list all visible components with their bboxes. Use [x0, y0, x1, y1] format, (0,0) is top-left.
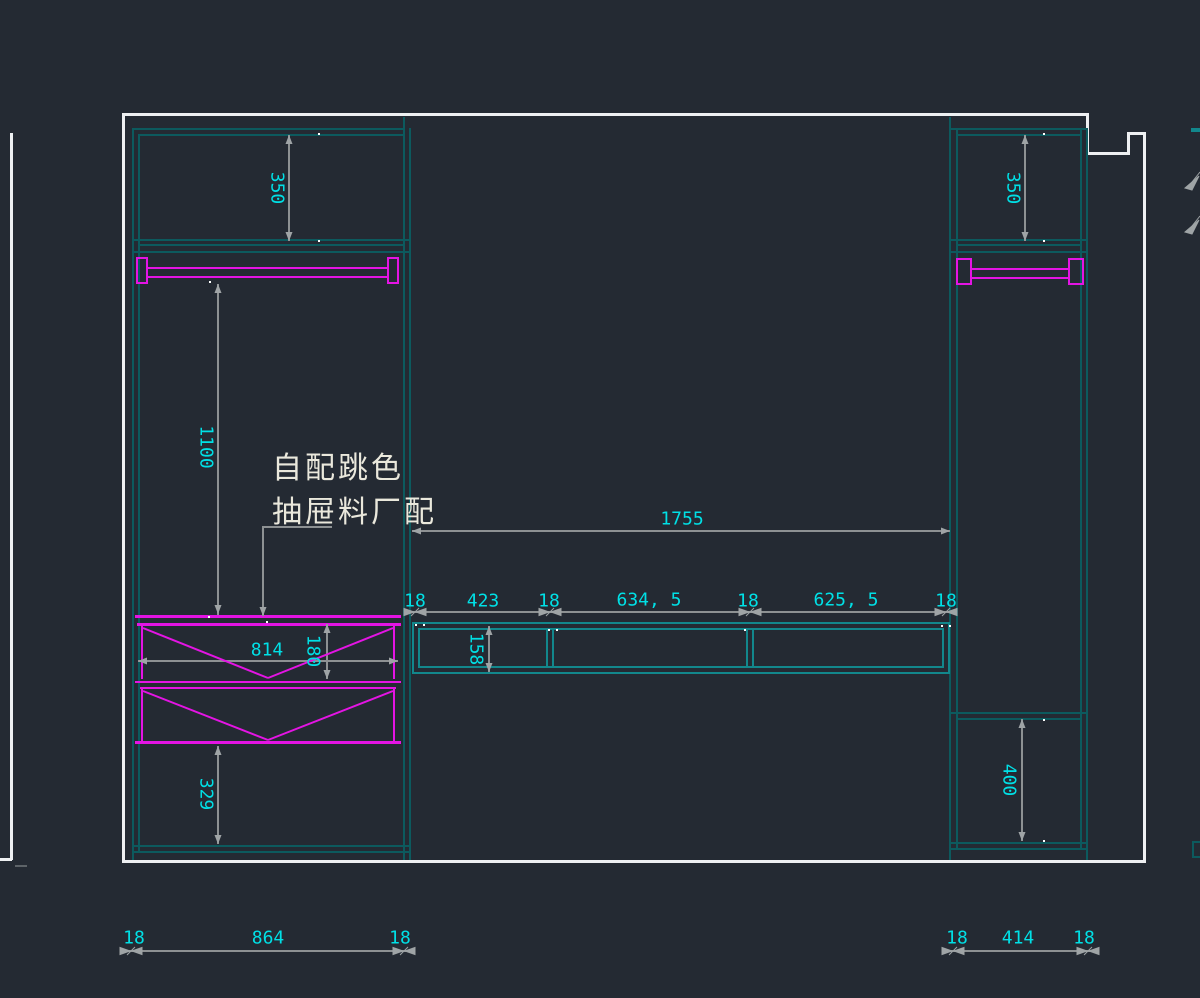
annotation-line-1: 自配跳色: [272, 443, 404, 487]
dim-1100-line: [217, 284, 219, 615]
outline-bottom: [122, 860, 1146, 863]
bench-divider-2b: [752, 628, 754, 668]
clipped-teal-fragment-h1: [1192, 841, 1200, 843]
adjacent-drawing-bottom-edge: [0, 858, 12, 861]
right-cabinet-rod-board: [949, 251, 1088, 253]
left-cabinet-top-inner-line: [138, 134, 405, 136]
dim-br-414-label: 414: [1002, 928, 1035, 949]
left-rod-bar: [146, 267, 389, 278]
clipped-teal-mark-top: [1191, 128, 1200, 132]
bench-right-inner: [942, 628, 944, 668]
left-cabinet-base-top: [132, 845, 409, 847]
dim-seg-18-4-label: 18: [935, 591, 957, 612]
dim-400-line: [1021, 719, 1023, 841]
dim-seg-625-label: 625, 5: [813, 590, 878, 611]
defpoint: [1043, 240, 1045, 242]
dim-bl-18-2-label: 18: [389, 928, 411, 949]
dim-1100-label: 1100: [196, 425, 217, 468]
left-cabinet-rod-board: [132, 251, 409, 253]
drawer-1-left-edge: [141, 626, 143, 679]
right-cabinet-left-outer: [949, 117, 951, 860]
defpoint: [318, 240, 320, 242]
bench-right-outer: [948, 622, 950, 674]
left-cabinet-shelf-bottom: [138, 244, 403, 246]
bench-top-inner: [418, 628, 944, 630]
right-cabinet-base-top: [949, 842, 1088, 844]
dim-814-label: 814: [251, 640, 284, 661]
dim-seg-18-1-label: 18: [404, 591, 426, 612]
dim-180-line: [326, 624, 328, 679]
right-rod-bar: [970, 268, 1070, 279]
drawer-unit-top-outer: [135, 615, 401, 618]
outline-notch-right: [1127, 132, 1130, 155]
drawer-2-right-edge: [393, 689, 395, 741]
bench-bottom-outer: [412, 672, 950, 674]
dim-seg-18-2-label: 18: [538, 591, 560, 612]
dim-329-line: [217, 746, 219, 844]
clipped-teal-fragment-h2: [1192, 856, 1200, 858]
drawer-unit-top-inner: [137, 623, 401, 626]
cad-viewport[interactable]: 350 350 1100 1755 18 423 18 634, 5 18 62…: [0, 0, 1200, 998]
dim-bottom-left-line: [129, 950, 406, 952]
defpoint: [1043, 133, 1045, 135]
annotation-leader-vertical: [262, 527, 264, 616]
dim-br-18-2-label: 18: [1073, 928, 1095, 949]
outline-right: [1143, 132, 1146, 863]
drawer-unit-bottom: [135, 741, 401, 744]
right-cabinet-lower-shelf-top: [949, 712, 1088, 714]
bench-left-inner: [418, 628, 420, 668]
bench-top-outer: [412, 622, 950, 624]
right-cabinet-top-line: [949, 128, 1088, 130]
defpoint: [423, 624, 425, 626]
right-cabinet-shelf-bottom: [956, 244, 1082, 246]
dim-329-label: 329: [196, 778, 217, 811]
defpoint: [415, 624, 417, 626]
drawer-separator-outer: [135, 681, 401, 683]
bench-bottom-inner: [418, 666, 944, 668]
dim-seg-423-label: 423: [467, 591, 500, 612]
left-cabinet-side-outer: [132, 128, 134, 860]
bench-divider-2a: [746, 628, 748, 668]
dim-br-18-1-label: 18: [946, 928, 968, 949]
defpoint: [1043, 840, 1045, 842]
dim-bl-18-1-label: 18: [123, 928, 145, 949]
right-cabinet-base-bottom: [949, 848, 1088, 850]
outline-top: [122, 113, 1089, 116]
right-rod-bracket-right: [1068, 258, 1084, 285]
dim-bottom-right-line: [950, 950, 1090, 952]
defpoint: [266, 621, 268, 623]
dim-350-left-line: [288, 135, 290, 241]
drawer-2-left-edge: [141, 689, 143, 741]
outline-notch-bottom: [1086, 152, 1130, 155]
dim-158-line: [488, 626, 490, 672]
right-cabinet-right-inner: [1080, 128, 1082, 848]
bench-divider-1a: [546, 628, 548, 668]
dim-seg-18-3-label: 18: [737, 591, 759, 612]
dim-180-label: 180: [303, 635, 324, 668]
bench-divider-1b: [552, 628, 554, 668]
dim-bl-864-label: 864: [252, 928, 285, 949]
left-cabinet-shelf-top: [132, 239, 409, 241]
right-cabinet-left-inner: [956, 128, 958, 848]
dim-350-right-line: [1024, 135, 1026, 241]
defpoint: [744, 629, 746, 631]
adjacent-drawing-tick: [15, 865, 27, 867]
annotation-line-2: 抽屉料厂配: [272, 487, 437, 531]
dim-158-label: 158: [466, 633, 487, 666]
right-cabinet-lower-shelf-bottom: [956, 718, 1082, 720]
dim-seg-634-label: 634, 5: [616, 590, 681, 611]
defpoint: [949, 625, 951, 627]
adjacent-drawing-left-edge: [10, 133, 13, 860]
dim-1755-line: [412, 530, 950, 532]
defpoint: [556, 629, 558, 631]
drawer-separator-inner: [140, 687, 396, 689]
drawer-1-right-edge: [393, 626, 395, 679]
defpoint: [209, 281, 211, 283]
dim-1755-label: 1755: [660, 509, 703, 530]
right-cabinet-top-inner-line: [956, 134, 1082, 136]
outline-left: [122, 113, 125, 863]
defpoint: [1043, 719, 1045, 721]
dim-400-label: 400: [999, 764, 1020, 797]
clipped-edge-marks: [1185, 172, 1200, 234]
left-cabinet-base-bottom: [132, 851, 409, 853]
left-cabinet-top-line: [132, 128, 405, 130]
right-cabinet-shelf-top: [949, 239, 1088, 241]
dim-350-right-label: 350: [1003, 172, 1024, 205]
right-cabinet-right-outer: [1086, 128, 1088, 860]
defpoint: [548, 629, 550, 631]
bench-left-outer: [412, 622, 414, 674]
defpoint: [318, 133, 320, 135]
defpoint: [208, 616, 210, 618]
defpoint: [941, 625, 943, 627]
dim-350-left-label: 350: [267, 172, 288, 205]
